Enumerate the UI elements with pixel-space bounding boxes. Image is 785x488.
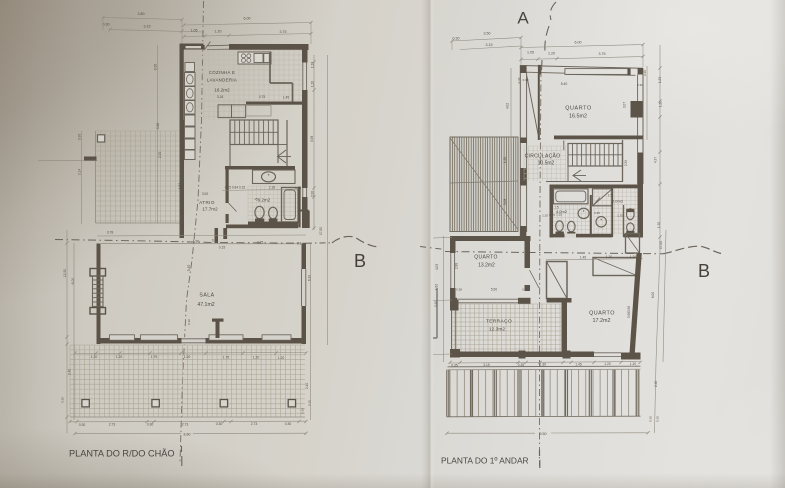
svg-text:17.2m2: 17.2m2 (593, 318, 611, 324)
svg-text:2.20: 2.20 (158, 152, 162, 159)
svg-text:1.20: 1.20 (91, 355, 98, 359)
svg-text:0.30: 0.30 (78, 134, 82, 141)
svg-text:1.45: 1.45 (283, 96, 290, 100)
svg-text:2.40: 2.40 (68, 369, 72, 375)
svg-text:0.30: 0.30 (103, 23, 110, 27)
svg-text:LAVANDERIA: LAVANDERIA (207, 78, 237, 83)
svg-text:0.30: 0.30 (523, 78, 529, 82)
svg-text:0.30: 0.30 (187, 319, 191, 325)
svg-text:3.15: 3.15 (144, 25, 151, 29)
svg-text:0.30: 0.30 (216, 422, 223, 426)
svg-text:1.45: 1.45 (580, 256, 586, 260)
svg-text:1.20: 1.20 (604, 362, 611, 366)
svg-text:1.20: 1.20 (116, 355, 123, 359)
svg-text:TERRAÇO: TERRAÇO (486, 319, 512, 325)
svg-text:0.30: 0.30 (453, 37, 460, 41)
svg-text:0.75: 0.75 (259, 95, 266, 99)
svg-text:3.14: 3.14 (78, 169, 82, 176)
svg-text:4.03: 4.03 (435, 264, 439, 270)
svg-text:13.2m2: 13.2m2 (478, 263, 495, 269)
svg-text:1.5: 1.5 (608, 194, 613, 198)
svg-text:4.02: 4.02 (506, 103, 510, 109)
svg-text:10.5m2: 10.5m2 (538, 161, 555, 167)
svg-text:QUARTO: QUARTO (589, 311, 615, 317)
svg-text:1.20: 1.20 (503, 157, 507, 163)
svg-text:12.3m2: 12.3m2 (489, 327, 505, 333)
svg-text:0.15: 0.15 (181, 224, 185, 230)
svg-text:0.55: 0.55 (522, 288, 528, 292)
svg-text:2.73: 2.73 (109, 422, 116, 426)
svg-text:1.20: 1.20 (606, 255, 612, 259)
svg-text:QUARTO: QUARTO (474, 255, 498, 261)
svg-text:3.07: 3.07 (623, 102, 627, 108)
svg-text:0.20: 0.20 (656, 416, 660, 422)
svg-text:6.00: 6.00 (651, 292, 655, 298)
svg-text:3.98: 3.98 (310, 136, 314, 142)
svg-text:17.00: 17.00 (319, 227, 323, 235)
svg-text:12.50: 12.50 (63, 269, 67, 278)
svg-text:2.73: 2.73 (182, 422, 189, 426)
svg-text:1.80: 1.80 (540, 363, 547, 367)
svg-text:8.80: 8.80 (184, 432, 191, 436)
svg-text:6.00: 6.00 (244, 17, 251, 21)
svg-text:9.50: 9.50 (540, 432, 547, 436)
svg-text:17.7m2: 17.7m2 (202, 207, 218, 212)
svg-text:2.73: 2.73 (251, 422, 258, 426)
svg-text:0.30: 0.30 (637, 83, 643, 87)
svg-text:B: B (698, 261, 710, 281)
svg-text:0.30: 0.30 (147, 422, 154, 426)
svg-text:1.05: 1.05 (527, 51, 534, 55)
svg-text:5.40: 5.40 (561, 82, 568, 86)
svg-text:COZINHA E: COZINHA E (209, 70, 235, 75)
svg-text:3.78: 3.78 (107, 231, 114, 235)
svg-text:2.40: 2.40 (305, 383, 309, 389)
svg-text:ATRIO: ATRIO (199, 200, 215, 205)
svg-text:0.30: 0.30 (517, 77, 521, 83)
svg-text:3.15: 3.15 (486, 43, 493, 47)
svg-text:0.38: 0.38 (456, 288, 462, 292)
svg-text:2.40: 2.40 (654, 381, 658, 387)
svg-text:3.00: 3.00 (202, 192, 208, 196)
svg-text:1.20: 1.20 (278, 356, 285, 360)
svg-text:0.30: 0.30 (61, 397, 65, 403)
svg-text:0.15: 0.15 (219, 246, 226, 250)
svg-text:A: A (517, 9, 529, 28)
svg-text:1.05: 1.05 (191, 29, 198, 33)
svg-text:16.5m2: 16.5m2 (569, 114, 587, 120)
svg-text:6.00: 6.00 (71, 278, 75, 285)
svg-text:0.30: 0.30 (79, 423, 86, 427)
svg-text:6.39: 6.39 (308, 275, 312, 281)
svg-text:1.75: 1.75 (223, 355, 230, 359)
svg-text:6.00: 6.00 (575, 41, 582, 45)
svg-text:0.30: 0.30 (308, 400, 312, 406)
svg-text:2.88: 2.88 (455, 263, 459, 269)
svg-text:1.20: 1.20 (253, 356, 260, 360)
svg-text:3.80: 3.80 (138, 12, 145, 16)
svg-text:17.00: 17.00 (659, 241, 663, 249)
svg-text:3.50: 3.50 (484, 32, 491, 36)
svg-text:SALA: SALA (199, 293, 214, 299)
svg-text:1.20: 1.20 (184, 355, 191, 359)
svg-text:0.30: 0.30 (301, 408, 305, 414)
svg-text:16.2m2: 16.2m2 (214, 88, 230, 93)
svg-text:5.50: 5.50 (491, 288, 497, 292)
svg-text:3.18: 3.18 (217, 95, 224, 99)
svg-text:0.24: 0.24 (212, 239, 219, 243)
svg-text:CIRCULAÇÃO: CIRCULAÇÃO (525, 153, 561, 160)
svg-text:3.20: 3.20 (311, 191, 315, 197)
svg-text:0.86: 0.86 (180, 209, 184, 215)
svg-text:1.20: 1.20 (657, 222, 661, 228)
svg-text:1.20: 1.20 (630, 362, 637, 366)
svg-text:PLANTA DO 1º ANDAR: PLANTA DO 1º ANDAR (441, 456, 529, 466)
svg-text:1.35: 1.35 (617, 214, 623, 218)
svg-text:4.37: 4.37 (654, 157, 658, 163)
svg-text:0.15: 0.15 (549, 213, 555, 217)
svg-text:1.25: 1.25 (556, 213, 562, 217)
svg-text:0.15 0.84 0.15: 0.15 0.84 0.15 (225, 186, 246, 190)
svg-text:5.40: 5.40 (187, 265, 191, 272)
svg-text:9.2m2: 9.2m2 (258, 198, 271, 203)
svg-text:1.20: 1.20 (630, 255, 636, 259)
svg-text:1.57: 1.57 (178, 183, 182, 189)
svg-text:B: B (354, 251, 366, 271)
svg-text:47.1m2: 47.1m2 (197, 302, 214, 308)
svg-text:1.20: 1.20 (215, 30, 222, 34)
svg-text:0.30: 0.30 (295, 187, 301, 191)
svg-text:3.56: 3.56 (627, 306, 631, 312)
svg-text:0.35: 0.35 (594, 211, 600, 215)
svg-text:3.58: 3.58 (156, 123, 160, 130)
svg-text:3.75: 3.75 (280, 30, 287, 34)
svg-text:0.30: 0.30 (649, 416, 653, 422)
svg-text:1.23: 1.23 (658, 77, 662, 83)
svg-text:1.20: 1.20 (542, 214, 548, 218)
svg-text:2.39: 2.39 (624, 160, 628, 166)
svg-text:1.20: 1.20 (311, 81, 315, 87)
svg-text:3.75: 3.75 (599, 52, 606, 56)
svg-text:8.00: 8.00 (154, 64, 158, 71)
svg-text:PLANTA DO R/DO CHÃO: PLANTA DO R/DO CHÃO (69, 449, 175, 459)
svg-text:1.45: 1.45 (575, 362, 582, 366)
svg-text:0.30: 0.30 (643, 70, 647, 76)
svg-text:QUARTO: QUARTO (565, 106, 591, 112)
svg-text:1.90: 1.90 (193, 240, 200, 244)
svg-text:2.18: 2.18 (269, 186, 275, 190)
svg-text:1.20: 1.20 (548, 52, 555, 56)
svg-text:2.0m2: 2.0m2 (612, 199, 624, 204)
svg-text:3.08: 3.08 (503, 199, 507, 205)
svg-text:0.30: 0.30 (285, 422, 292, 426)
svg-text:1.75: 1.75 (151, 355, 158, 359)
